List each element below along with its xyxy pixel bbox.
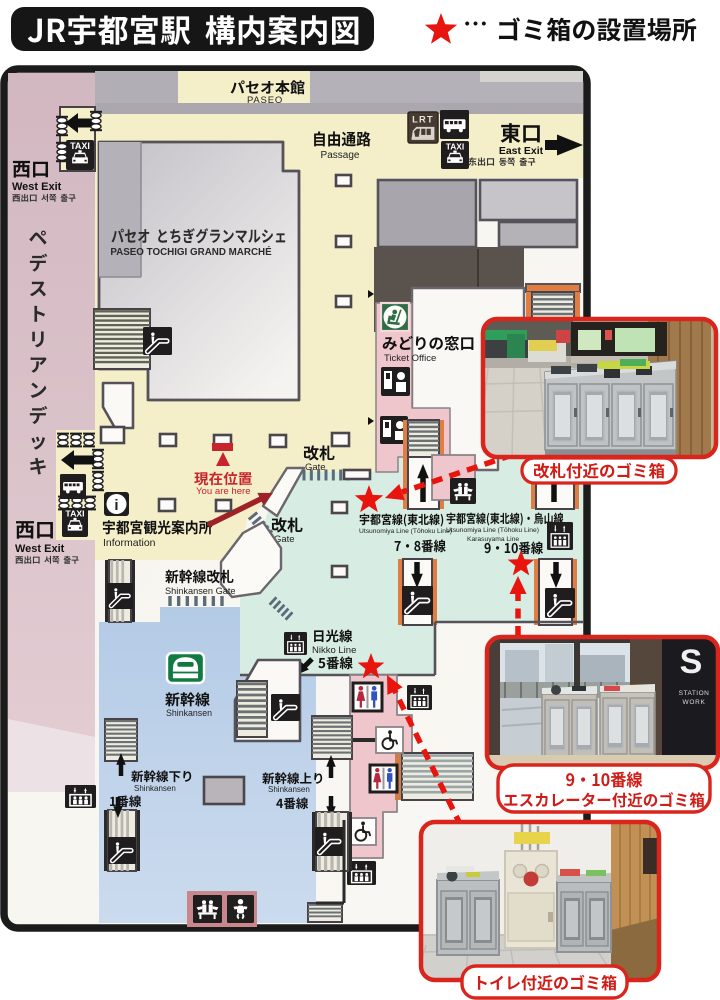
svg-text:LRT: LRT [412,115,434,125]
svg-text:Shinkansen: Shinkansen [134,784,176,793]
svg-text:PASEO TOCHIGI GRAND MARCHÉ: PASEO TOCHIGI GRAND MARCHÉ [110,246,272,258]
svg-text:S: S [680,643,703,681]
svg-text:You are here: You are here [196,486,251,497]
svg-text:East Exit: East Exit [499,145,544,157]
svg-text:Nikko Line: Nikko Line [312,645,356,656]
svg-text:Utsunomiya Line (Tōhoku Line): Utsunomiya Line (Tōhoku Line) [359,528,452,535]
svg-text:Gate: Gate [305,462,326,473]
svg-text:Shinkansen: Shinkansen [166,708,212,718]
svg-text:Information: Information [103,537,156,549]
svg-text:Shinkansen: Shinkansen [268,785,310,794]
svg-text:PASEO: PASEO [247,95,283,106]
svg-text:Utsunomiya Line (Tōhoku Line): Utsunomiya Line (Tōhoku Line) [446,527,539,534]
svg-text:Karasuyama Line: Karasuyama Line [467,536,519,543]
svg-text:WORK: WORK [682,699,705,706]
svg-text:TAXI: TAXI [70,141,90,151]
svg-text:i: i [114,498,118,514]
svg-text:TAXI: TAXI [65,509,84,519]
svg-text:Passage: Passage [321,150,360,161]
svg-text:Shinkansen Gate: Shinkansen Gate [165,586,236,596]
svg-text:STATION: STATION [679,690,710,697]
svg-text:West Exit: West Exit [12,181,62,193]
svg-text:Ticket Office: Ticket Office [384,353,436,364]
svg-text:TAXI: TAXI [446,141,464,151]
svg-text:West Exit: West Exit [15,543,65,555]
